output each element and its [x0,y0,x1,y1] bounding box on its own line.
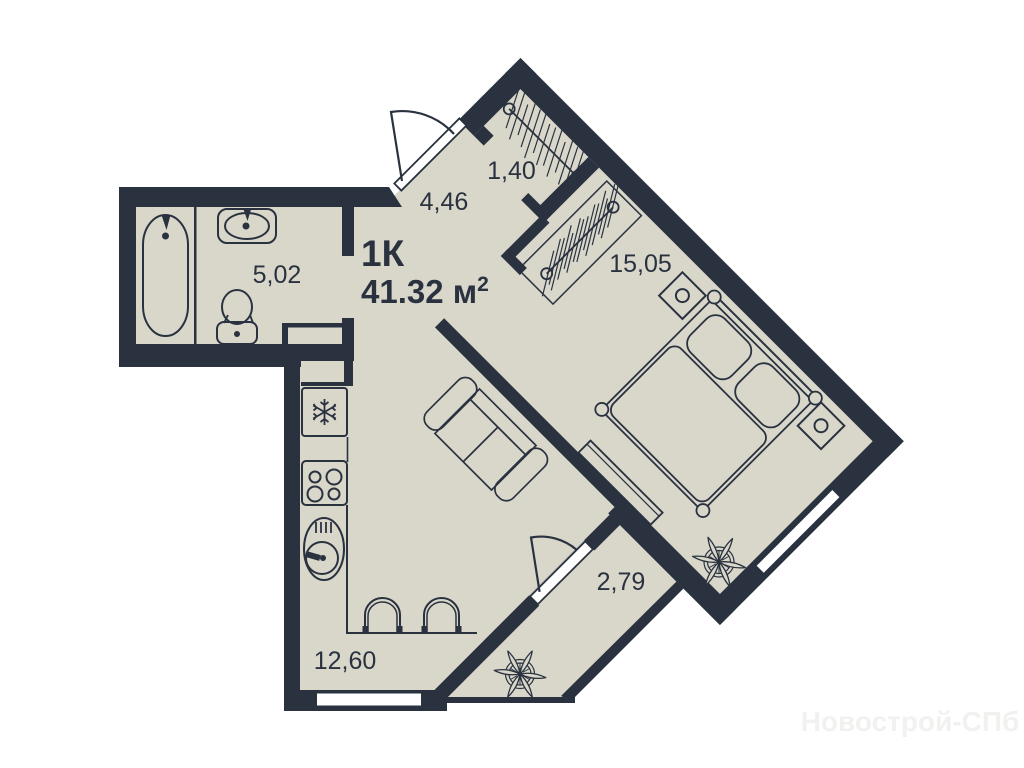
svg-text:41.32 м2: 41.32 м2 [361,273,489,310]
svg-text:12,60: 12,60 [314,647,377,675]
svg-text:Новострой-СПб: Новострой-СПб [801,706,1020,737]
svg-text:15,05: 15,05 [609,250,672,278]
svg-text:1,40: 1,40 [487,157,536,185]
svg-text:1К: 1К [361,233,405,274]
svg-text:4,46: 4,46 [420,188,469,216]
svg-text:5,02: 5,02 [253,261,302,289]
svg-text:2,79: 2,79 [597,568,646,596]
